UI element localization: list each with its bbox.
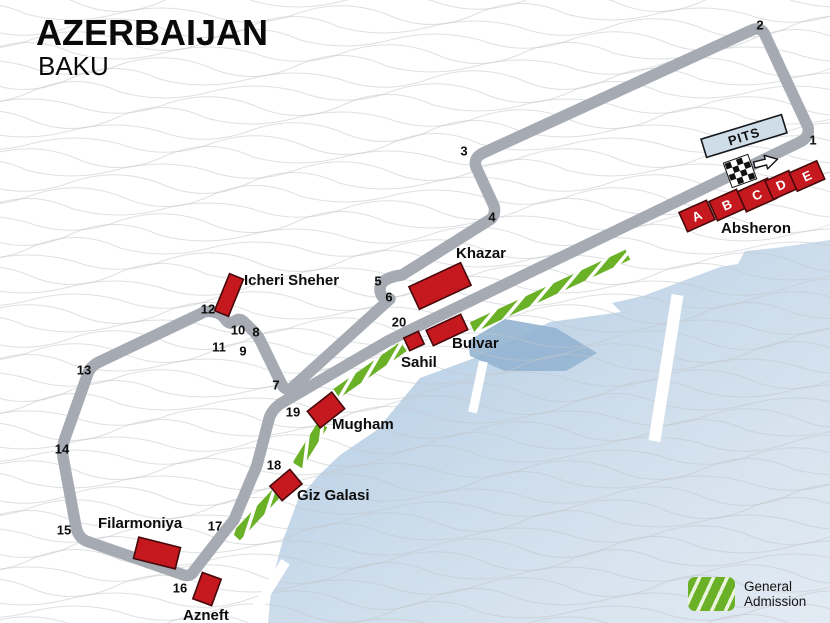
circuit-map: ABCDE PITS AZERBAIJAN BAKU General Admis…: [0, 0, 830, 623]
map-canvas: ABCDE PITS: [0, 0, 830, 623]
